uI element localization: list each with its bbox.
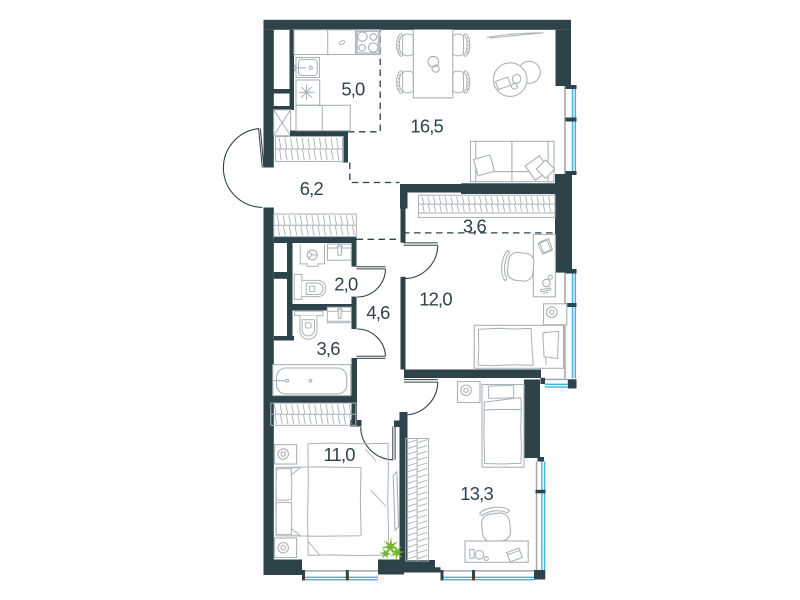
svg-text:11,0: 11,0	[323, 444, 355, 465]
svg-text:3,6: 3,6	[463, 216, 487, 237]
svg-text:2,0: 2,0	[334, 274, 358, 295]
svg-text:13,3: 13,3	[460, 483, 493, 504]
svg-text:6,2: 6,2	[300, 178, 324, 199]
svg-text:16,5: 16,5	[410, 116, 443, 137]
svg-text:5,0: 5,0	[341, 79, 365, 100]
svg-text:3,6: 3,6	[317, 338, 341, 359]
svg-text:4,6: 4,6	[366, 302, 390, 323]
svg-text:12,0: 12,0	[419, 289, 452, 310]
